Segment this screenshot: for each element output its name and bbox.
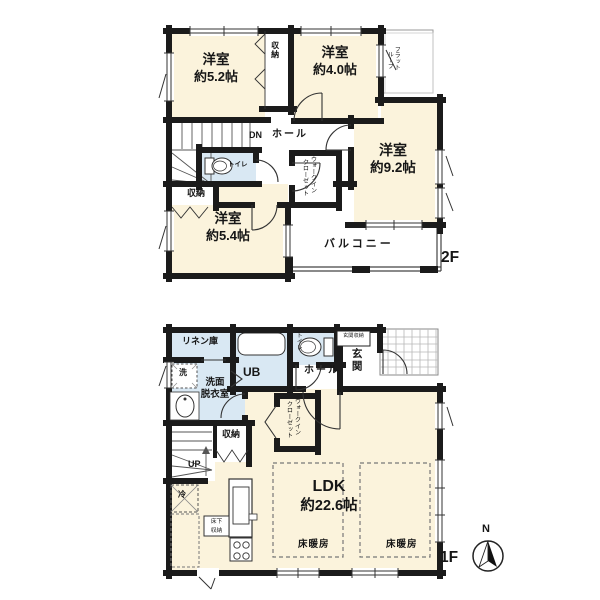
ub-label: UB <box>243 365 260 379</box>
entrance-storage-label: 玄関収納 <box>338 333 369 340</box>
linen-label: リネン庫 <box>170 336 230 347</box>
toilet-2f-label: トイレ <box>228 161 248 169</box>
fridge-label: 冷 <box>178 490 186 500</box>
closet-left-label: 収納 <box>176 188 216 199</box>
compass <box>473 541 503 571</box>
entrance-label: 玄関 <box>350 348 363 373</box>
toilet-1f-label: トイレ <box>294 332 301 350</box>
up-label: UP <box>188 459 201 470</box>
flat-roof-label-1: フラット <box>392 46 399 70</box>
room-5-4-label: 洋室 約5.4帖 <box>172 211 284 244</box>
entrance-porch <box>380 329 438 375</box>
balcony-label: バルコニー <box>324 238 394 251</box>
wic-2f-label-1: ウォークイン <box>309 156 316 193</box>
dn-label: DN <box>249 130 262 141</box>
floor-heating-label-1: 床暖房 <box>298 539 330 550</box>
washer-label: 洗 <box>179 368 187 378</box>
floor-tag-2f: 2F <box>441 249 459 268</box>
closet-top-label: 収納 <box>270 41 280 59</box>
compass-north-label: N <box>482 523 490 536</box>
underfloor-storage-label: 床下 収納 <box>204 518 229 537</box>
room-9-2-label: 洋室 約9.2帖 <box>348 142 438 176</box>
wic-1f-label-2: クローゼット <box>285 401 292 438</box>
floor-tag-1f: 1F <box>440 549 458 568</box>
wic-2f-label-2: クローゼット <box>301 159 308 196</box>
closet-1f-label: 収納 <box>212 429 250 440</box>
bathtub-icon <box>238 333 285 355</box>
floor-heating-label-2: 床暖房 <box>386 539 418 550</box>
toilet-icon-1f <box>324 338 333 356</box>
room-5-2-label: 洋室 約5.2帖 <box>168 52 264 85</box>
hall-1f-label: ホール <box>304 365 340 377</box>
room-4-0-label: 洋室 約4.0帖 <box>292 45 378 78</box>
ldk-label: LDK 約22.6帖 <box>274 477 384 515</box>
floorplan-canvas: 洋室 約5.2帖 収納 洋室 約4.0帖 フラット ルーフ DN ホール トイレ… <box>0 0 600 600</box>
wic-1f-label-1: ウォークイン <box>293 398 300 435</box>
hall-2f-label: ホール <box>272 129 308 141</box>
sanitary-label: 洗面 脱衣室 <box>190 377 240 401</box>
flat-roof-label-2: ルーフ <box>385 51 392 69</box>
